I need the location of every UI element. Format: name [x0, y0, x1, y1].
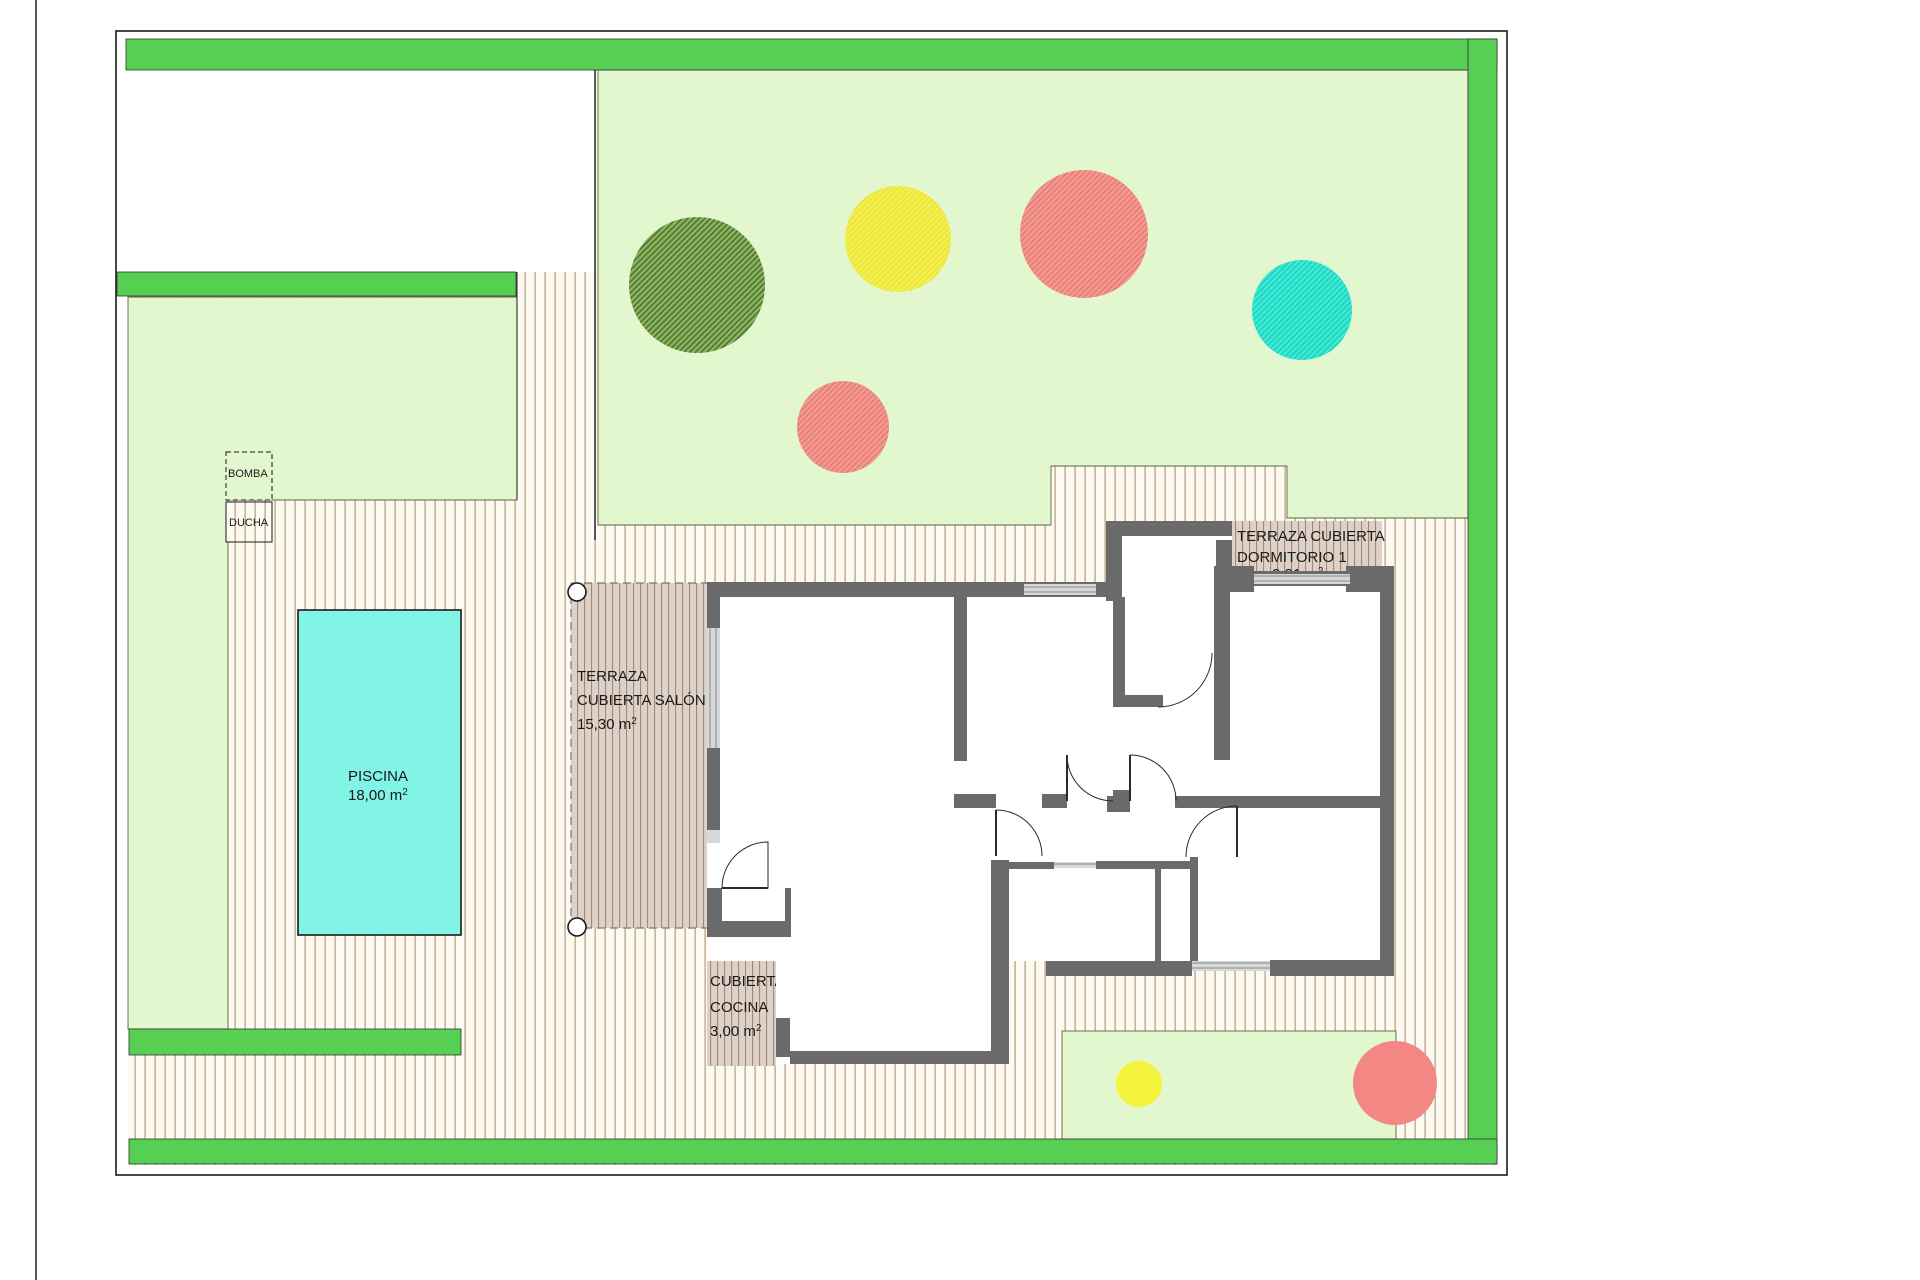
svg-text:15,30 m2: 15,30 m2 [577, 716, 637, 733]
svg-text:TERRAZA CUBIERTA: TERRAZA CUBIERTA [1237, 528, 1385, 545]
svg-text:DUCHA: DUCHA [229, 517, 269, 529]
svg-text:CUBIERTA SALÓN: CUBIERTA SALÓN [577, 692, 706, 709]
svg-text:COCINA: COCINA [710, 999, 768, 1016]
svg-text:CUBIERTA: CUBIERTA [710, 973, 784, 990]
svg-text:TERRAZA: TERRAZA [577, 668, 647, 685]
svg-text:3,00 m2: 3,00 m2 [710, 1023, 762, 1040]
svg-text:18,00 m2: 18,00 m2 [348, 787, 408, 804]
svg-text:BOMBA: BOMBA [228, 468, 268, 480]
svg-text:DORMITORIO 1: DORMITORIO 1 [1237, 549, 1347, 566]
svg-text:PISCINA: PISCINA [348, 768, 408, 785]
